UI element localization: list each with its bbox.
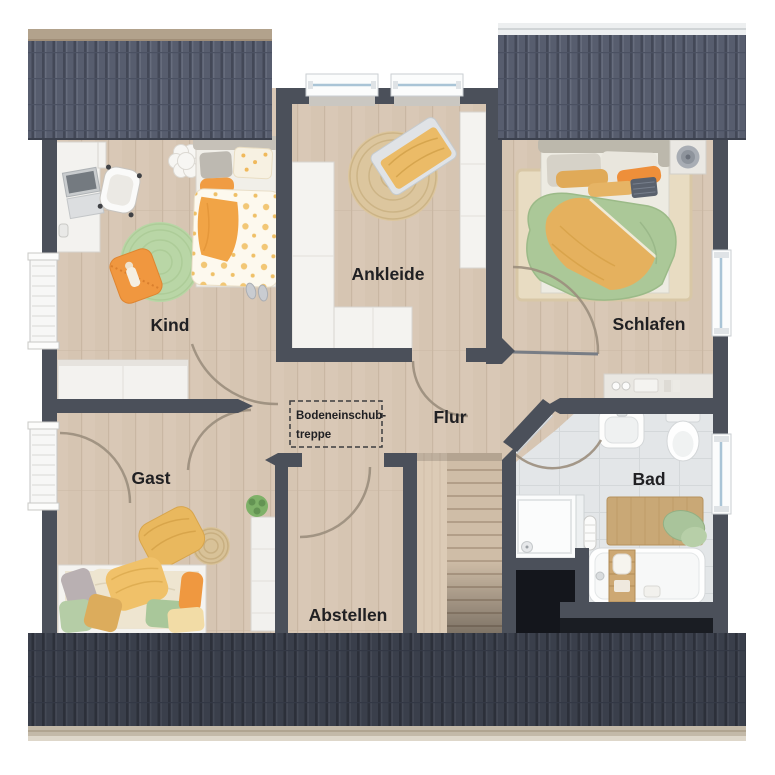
wall-kind-gast <box>57 399 220 413</box>
kind-bed <box>191 136 280 287</box>
wall-exterior-left <box>42 128 57 638</box>
duvet <box>527 193 676 300</box>
window-bad <box>712 434 731 514</box>
room-label-gast: Gast <box>132 468 171 488</box>
staircase <box>417 453 502 635</box>
bathtub <box>589 548 705 604</box>
shelf-cabinet <box>251 517 277 631</box>
room-label-bad: Bad <box>632 469 665 489</box>
roof-bottom <box>28 633 746 741</box>
radiator-kind <box>28 253 59 349</box>
towel-radiator <box>584 516 596 550</box>
wall-ankleide-flur <box>276 348 412 362</box>
attic-hatch-label-line2: treppe <box>296 429 331 441</box>
room-label-schlafen: Schlafen <box>613 314 686 334</box>
laptop <box>62 167 103 218</box>
folded-blanket <box>630 177 658 199</box>
wall-stairs-right <box>502 446 516 635</box>
wall-bad-top <box>560 398 713 414</box>
floorplan-canvas: Bodeneinschub- treppe Kind Ankleide Schl… <box>0 0 775 775</box>
window-ankleide-2 <box>391 74 463 96</box>
room-label-kind: Kind <box>151 315 190 335</box>
daybed <box>58 554 206 635</box>
wall-bad-bottom <box>560 602 713 618</box>
shower <box>513 495 576 558</box>
roof-top-right <box>498 23 746 140</box>
door-leaf-schlafen <box>513 352 598 354</box>
wall-gast-abstellen <box>275 460 288 635</box>
roof-top-left <box>28 29 272 140</box>
wall-kind-ankleide <box>276 88 292 362</box>
radiator-gast <box>28 422 59 510</box>
potted-plant <box>246 495 268 517</box>
room-label-flur: Flur <box>433 407 466 427</box>
attic-hatch-label-line1: Bodeneinschub- <box>296 410 386 422</box>
room-label-abstellen: Abstellen <box>309 605 388 625</box>
floorplan-svg: Bodeneinschub- treppe Kind Ankleide Schl… <box>0 0 775 775</box>
window-ankleide-1 <box>306 74 378 96</box>
toilet <box>666 408 700 461</box>
wall-stairs-left <box>403 453 417 635</box>
room-label-ankleide: Ankleide <box>352 264 425 284</box>
wall-exterior-right <box>713 140 728 634</box>
eaves-void <box>560 618 713 634</box>
shower-glass <box>576 495 584 549</box>
wardrobe-right <box>460 112 486 268</box>
window-schlafen <box>712 250 731 336</box>
